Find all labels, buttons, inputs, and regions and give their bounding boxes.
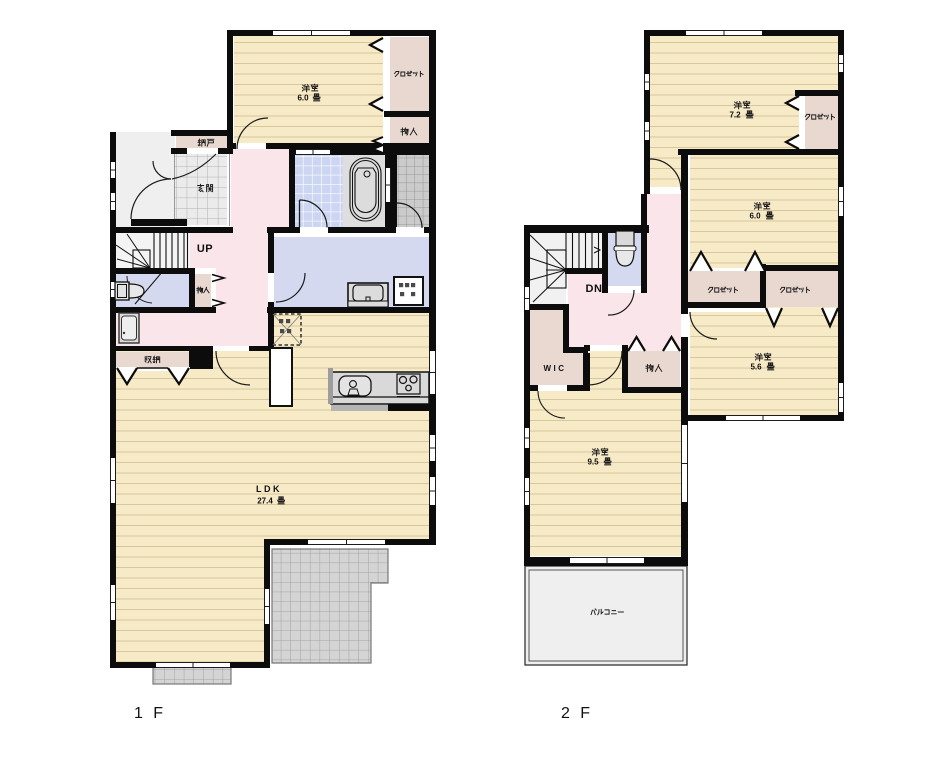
svg-text:WIC: WIC: [543, 364, 566, 373]
svg-text:5.6: 5.6: [750, 363, 762, 372]
svg-text:DN: DN: [586, 283, 603, 295]
svg-text:9.5: 9.5: [587, 458, 599, 467]
svg-text:LDK: LDK: [256, 484, 282, 494]
svg-text:UP: UP: [197, 243, 213, 255]
svg-text:1 F: 1 F: [134, 705, 166, 722]
svg-text:6.0: 6.0: [297, 94, 309, 103]
svg-text:7.2: 7.2: [729, 111, 741, 120]
svg-text:6.0: 6.0: [749, 212, 761, 221]
svg-text:2 F: 2 F: [561, 705, 593, 722]
svg-text:27.4: 27.4: [257, 497, 273, 506]
